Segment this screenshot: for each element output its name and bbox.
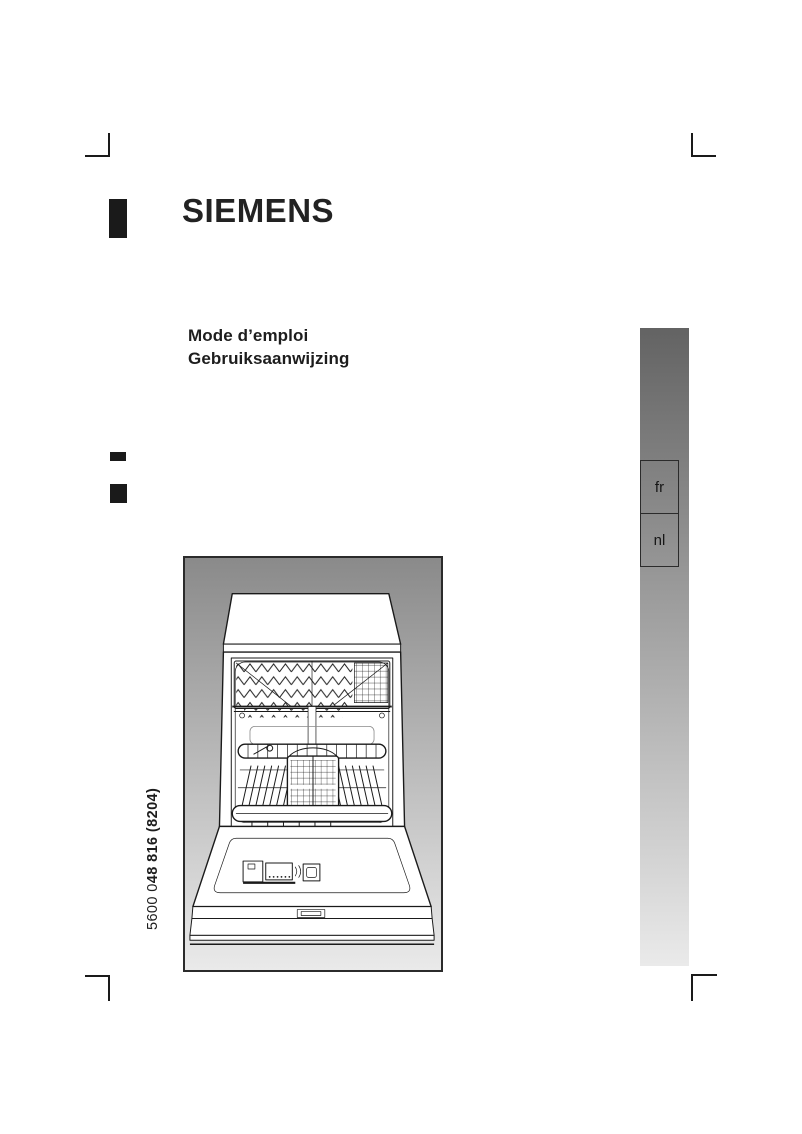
title-block: Mode d’emploi Gebruiksaanwijzing [188,325,349,370]
language-tab-fr-label: fr [655,479,664,496]
brand-logo: SIEMENS [182,192,334,230]
crop-mark-top-left-icon [85,133,110,157]
part-number-emphasis: 48 816 (8204) [145,788,161,884]
part-number-prefix: 5600 0 [145,883,161,930]
illustration-box [183,556,443,972]
title-french: Mode d’emploi [188,325,349,348]
language-tab-nl: nl [640,513,679,567]
title-dutch: Gebruiksaanwijzing [188,348,349,371]
part-number: 5600 048 816 (8204) [145,788,161,930]
registration-bar-mark [109,199,127,238]
crop-mark-bottom-right-icon [691,974,717,1001]
language-tab-fr: fr [640,460,679,514]
crop-mark-top-right-icon [691,133,716,157]
language-index-bar: fr nl [640,328,689,966]
registration-square-mark [110,484,127,503]
registration-dash-mark [110,452,126,461]
manual-cover-page: SIEMENS Mode d’emploi Gebruiksaanwijzing… [0,0,802,1134]
crop-mark-bottom-left-icon [85,975,110,1001]
dishwasher-illustration [185,558,441,970]
language-tab-nl-label: nl [654,532,666,549]
